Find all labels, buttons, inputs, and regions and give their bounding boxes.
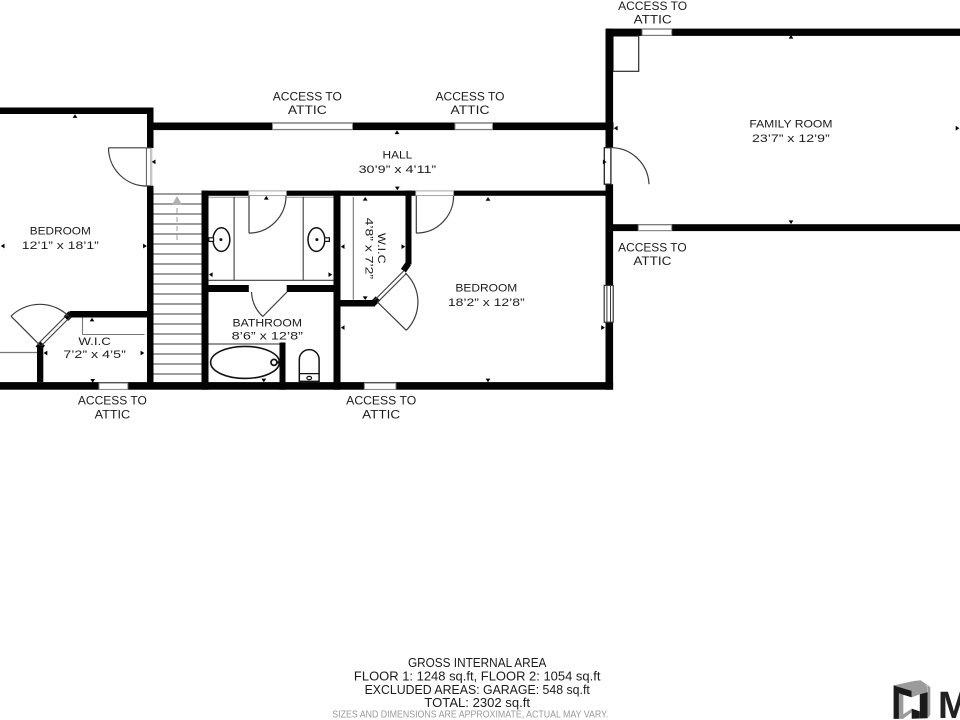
svg-text:W.I.C: W.I.C <box>78 336 111 348</box>
svg-text:ATTIC: ATTIC <box>288 103 327 117</box>
svg-text:BEDROOM: BEDROOM <box>30 226 91 238</box>
svg-text:23’7” x 12’9”: 23’7” x 12’9” <box>752 133 830 145</box>
svg-text:ATTIC: ATTIC <box>634 12 672 26</box>
svg-text:4’8” x 7’2”: 4’8” x 7’2” <box>362 218 374 280</box>
svg-text:ATTIC: ATTIC <box>451 103 490 117</box>
svg-text:ACCESS TO: ACCESS TO <box>273 89 342 103</box>
svg-text:W.I.C: W.I.C <box>375 233 387 264</box>
svg-text:8’6” x 12’8”: 8’6” x 12’8” <box>232 330 304 342</box>
svg-text:BEDROOM: BEDROOM <box>455 283 517 295</box>
svg-text:ACCESS TO: ACCESS TO <box>346 394 416 408</box>
svg-text:ATTIC: ATTIC <box>95 408 131 422</box>
svg-text:ACCESS TO: ACCESS TO <box>78 394 147 408</box>
svg-text:FAMILY ROOM: FAMILY ROOM <box>749 118 832 130</box>
svg-text:M: M <box>938 685 960 720</box>
svg-text:12’1” x 18’1”: 12’1” x 18’1” <box>22 240 99 252</box>
svg-text:ACCESS TO: ACCESS TO <box>618 241 687 255</box>
svg-text:ATTIC: ATTIC <box>633 254 671 268</box>
svg-text:HALL: HALL <box>383 150 413 162</box>
svg-text:30’9” x 4’11”: 30’9” x 4’11” <box>359 164 437 176</box>
svg-text:18’2” x 12’8”: 18’2” x 12’8” <box>448 297 525 309</box>
svg-text:ATTIC: ATTIC <box>362 408 400 422</box>
svg-text:ACCESS TO: ACCESS TO <box>436 89 505 103</box>
svg-text:7’2” x 4’5”: 7’2” x 4’5” <box>63 349 126 361</box>
svg-text:SIZES AND DIMENSIONS ARE APPRO: SIZES AND DIMENSIONS ARE APPROXIMATE, AC… <box>332 710 608 720</box>
svg-text:BATHROOM: BATHROOM <box>233 318 303 330</box>
svg-text:TOTAL: 2302 sq.ft: TOTAL: 2302 sq.ft <box>424 695 530 710</box>
svg-text:ACCESS TO: ACCESS TO <box>618 0 687 13</box>
